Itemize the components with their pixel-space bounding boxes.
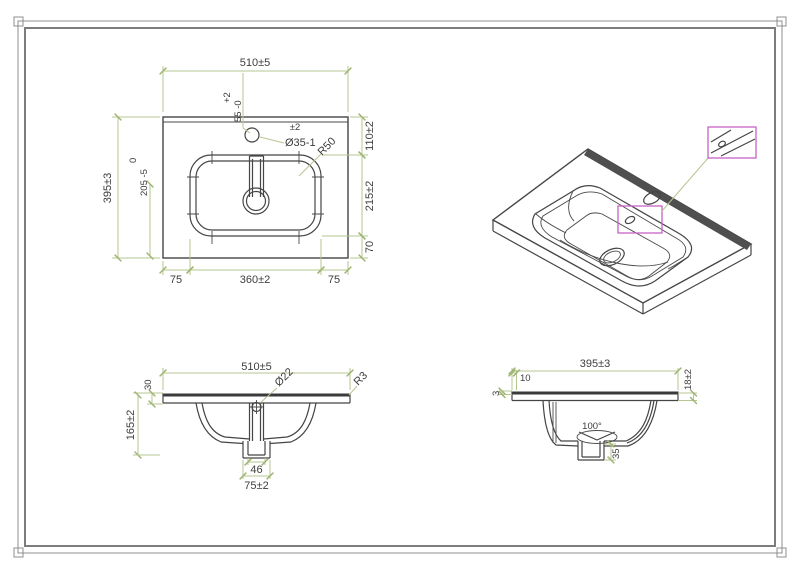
plan-back-ledge-label: 110±2 xyxy=(364,121,376,151)
plan-front-ledge-label: 70 xyxy=(364,241,376,253)
front-overall-width-label: 510±5 xyxy=(241,361,272,373)
plan-tap-offset-tol-label: +2 xyxy=(222,92,233,103)
plan-overall-width-label: 510±5 xyxy=(240,57,271,69)
front-overall-height-label: 165±2 xyxy=(125,410,137,441)
front-drain-outer-label: 75±2 xyxy=(244,480,268,492)
plan-tap-dia-label: Ø35-1 xyxy=(285,137,316,149)
side-section-view: 395±3 10 3 18±2 100° 35 xyxy=(491,358,697,460)
side-drain-box xyxy=(578,441,604,460)
detail-hatch-lines xyxy=(711,130,755,156)
side-drain-height-label: 35 xyxy=(611,448,622,459)
side-back-offset-label: 10 xyxy=(520,373,531,384)
plan-basin-depth-label: 215±2 xyxy=(364,181,376,212)
plan-side-margin-left-label: 75 xyxy=(170,274,182,286)
side-rim-thickness-label: 3 xyxy=(491,391,502,396)
plan-overall-depth-label: 395±3 xyxy=(102,173,114,204)
side-cone-angle-label: 100° xyxy=(582,421,602,432)
side-back-channel xyxy=(553,402,556,443)
iso-detail-callout xyxy=(708,127,756,158)
side-drain-recess xyxy=(577,431,617,444)
detail-overflow-hole xyxy=(718,140,727,148)
side-edge-thickness-label: 18±2 xyxy=(683,369,694,390)
plan-basin-width-label: 360±2 xyxy=(240,274,271,286)
side-overall-depth-label: 395±3 xyxy=(580,358,611,370)
front-dimensions xyxy=(133,368,357,479)
front-drain-inner-label: 46 xyxy=(250,464,262,476)
front-overflow-dia-label: Ø22 xyxy=(273,366,296,389)
plan-view: 510±5 55 -0 +2 395±3 205 -5 0 ±2 Ø35-1 R… xyxy=(102,57,376,286)
front-basin-walls xyxy=(196,403,316,444)
blueprint-page: 510±5 55 -0 +2 395±3 205 -5 0 ±2 Ø35-1 R… xyxy=(0,0,800,574)
drawing-canvas: 510±5 55 -0 +2 395±3 205 -5 0 ±2 Ø35-1 R… xyxy=(0,0,800,574)
plan-basin-zero-tol-label: 0 xyxy=(128,158,139,163)
front-section-view: 510±5 30 165±2 Ø22 R3 46 75±2 xyxy=(125,361,370,492)
iso-detail-leader xyxy=(662,157,709,211)
side-cone-lines xyxy=(579,432,615,440)
iso-view xyxy=(493,127,756,314)
front-apron-height-label: 30 xyxy=(143,379,154,390)
front-drain-box xyxy=(243,441,270,458)
plan-tap-dia-tol-label: ±2 xyxy=(290,122,301,133)
plan-basin-offset-label: 205 -5 xyxy=(139,169,150,196)
plan-side-margin-right-label: 75 xyxy=(328,274,340,286)
plan-tap-offset-label: 55 -0 xyxy=(233,100,244,122)
front-edge-radius-label: R3 xyxy=(352,370,370,388)
